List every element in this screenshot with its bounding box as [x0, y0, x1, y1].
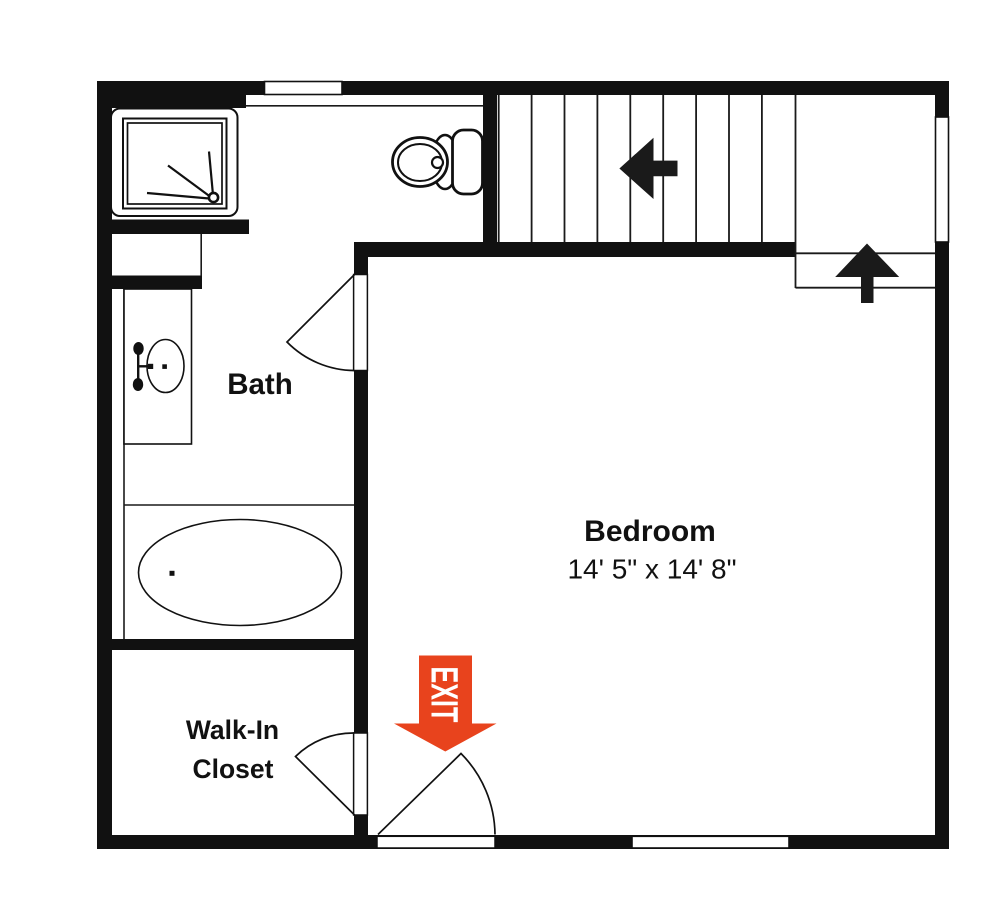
- svg-text:EXIT: EXIT: [423, 667, 465, 723]
- svg-text:Walk-In: Walk-In: [186, 715, 279, 745]
- svg-text:Bath: Bath: [227, 368, 293, 401]
- svg-text:Closet: Closet: [193, 754, 274, 784]
- svg-text:Bedroom: Bedroom: [584, 515, 716, 548]
- svg-text:14' 5" x 14' 8": 14' 5" x 14' 8": [567, 554, 736, 585]
